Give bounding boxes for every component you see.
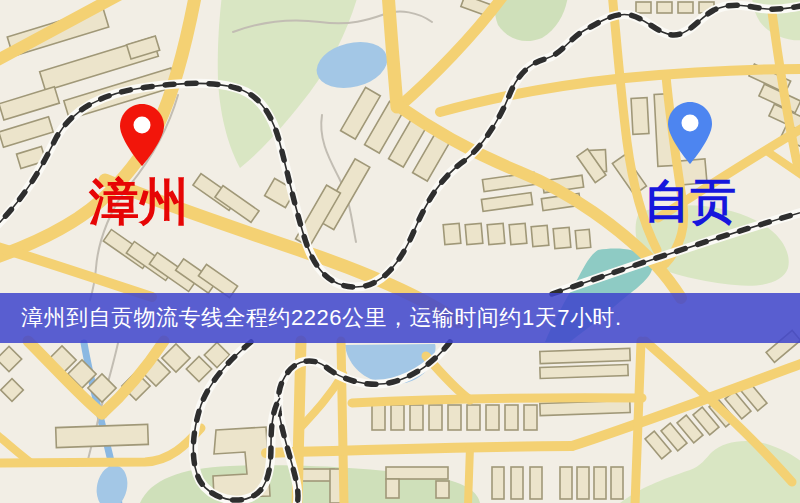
map-screenshot: 漳州 自贡 漳州到自贡物流专线全程约2226公里，运输时间约1天7小时. (0, 0, 800, 503)
destination-city-label: 自贡 (644, 176, 736, 227)
origin-marker[interactable] (120, 104, 164, 166)
route-info-banner: 漳州到自贡物流专线全程约2226公里，运输时间约1天7小时. (0, 293, 800, 343)
origin-city-label: 漳州 (88, 174, 189, 230)
origin-pin-hole (134, 117, 151, 134)
map-canvas[interactable]: 漳州 自贡 (0, 0, 800, 503)
origin-pin-icon (120, 104, 164, 166)
route-info-text: 漳州到自贡物流专线全程约2226公里，运输时间约1天7小时. (21, 305, 622, 330)
destination-pin-hole (682, 115, 699, 132)
